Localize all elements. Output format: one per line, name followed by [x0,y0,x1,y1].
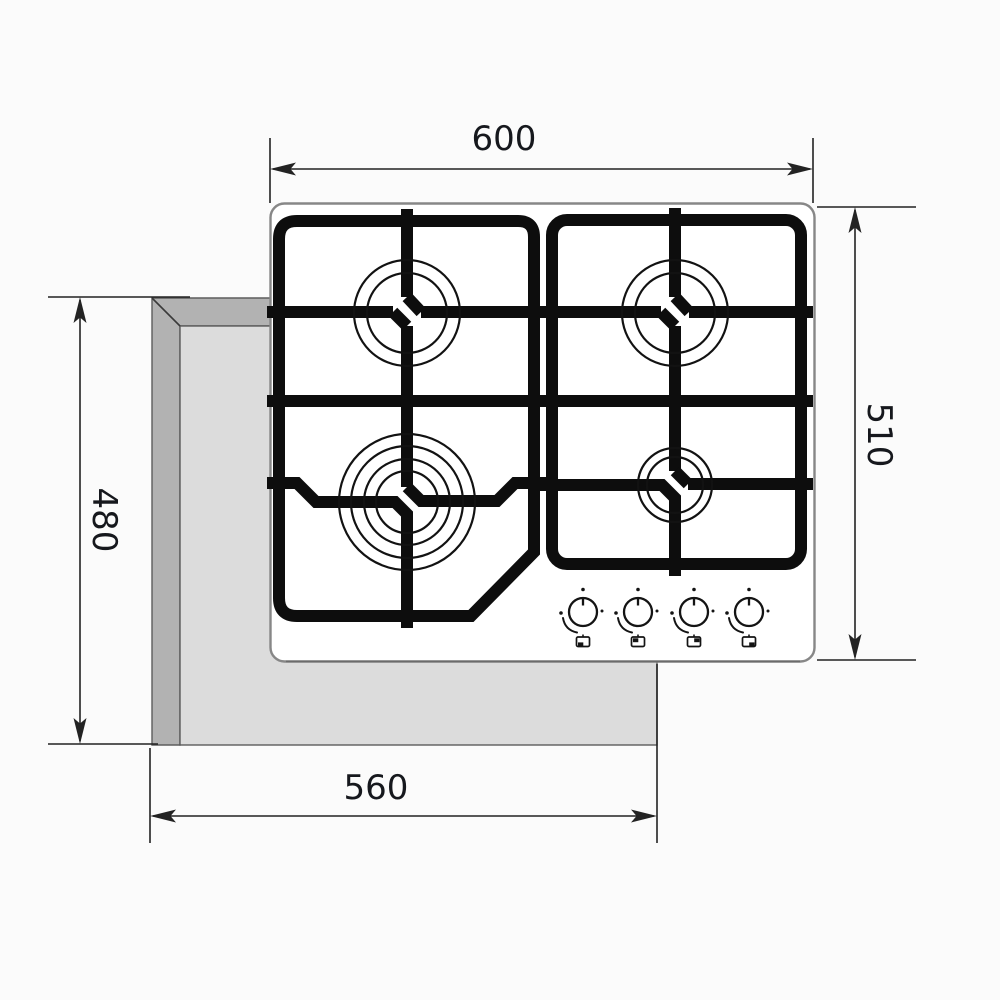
dimension-label-hob-depth: 510 [859,403,899,468]
burner-position-icon [694,638,699,642]
dimension-hob-depth: 510 [817,207,916,660]
dimension-label-cutout-depth: 480 [84,488,124,553]
hob-body [271,204,815,662]
hob-panel [271,204,815,662]
dimension-label-cutout-width: 560 [344,768,409,808]
dimension-label-hob-width: 600 [472,119,537,159]
dimension-hob-width: 600 [270,119,813,203]
burner-position-icon [749,642,754,646]
burner-position-icon [578,642,583,646]
burner-position-icon [633,638,638,642]
diagram-canvas: 600 510 480 560 [0,0,1000,1000]
hob-installation-diagram: 600 510 480 560 [0,0,1000,1000]
